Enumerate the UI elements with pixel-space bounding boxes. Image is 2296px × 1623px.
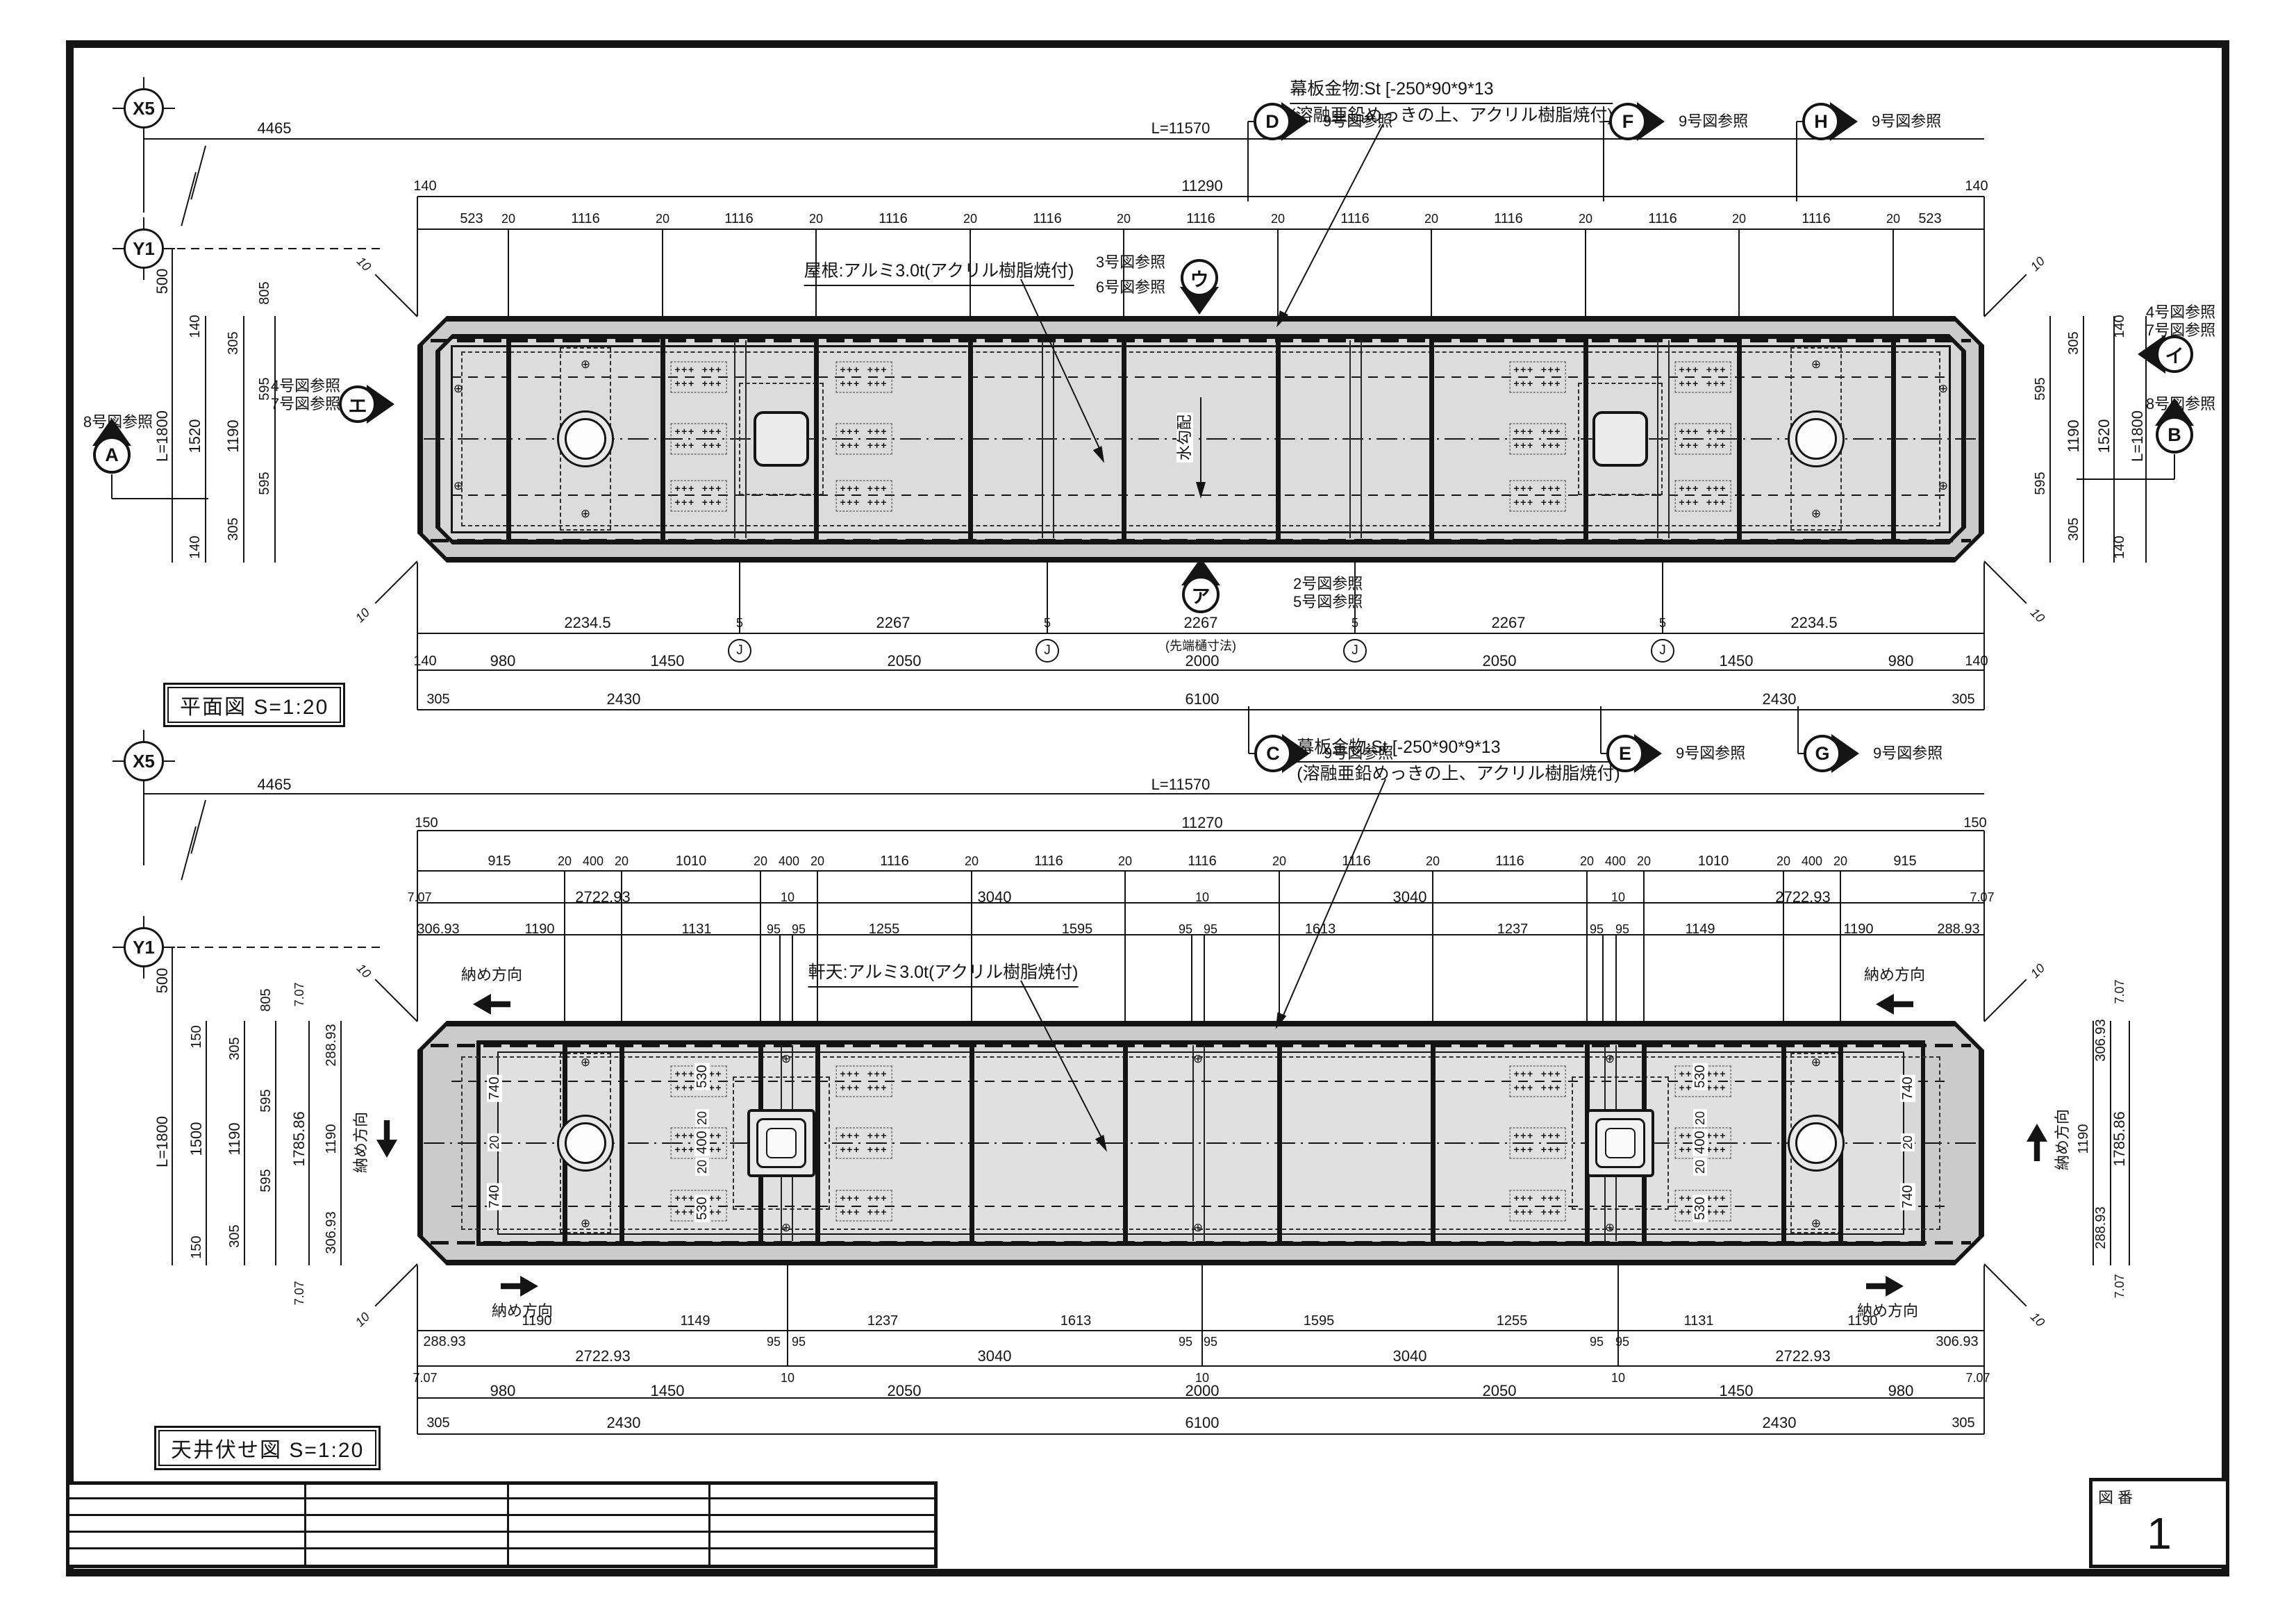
ceiling-mullion (1277, 1044, 1282, 1242)
dimension-label: 6100 (1186, 1415, 1220, 1431)
ceiling-rail (1192, 1045, 1194, 1241)
dimension-label: 400 (583, 855, 604, 867)
dimension-label: 3040 (978, 1349, 1012, 1364)
ceiling-dash-bottom (431, 1241, 1971, 1245)
dimension-line (2077, 478, 2174, 480)
dimension-label: 305 (2067, 517, 2081, 540)
dimension-label: 納め方向 (2055, 1109, 2070, 1170)
ceiling-bolt-icon: ⊕ (581, 1217, 590, 1231)
marker-letter: イ (2156, 335, 2193, 373)
dimension-label: 20 (1637, 855, 1651, 867)
plan-column-square (754, 411, 809, 467)
dimension-line (2113, 316, 2115, 563)
dimension-label: 9号図参照 (1872, 114, 1941, 129)
grid-bubble-tick (113, 248, 124, 249)
dimension-line (1432, 871, 1433, 1021)
dimension-label: 980 (490, 1383, 516, 1399)
dimension-label: 305 (228, 1224, 242, 1247)
dimension-line (172, 249, 173, 563)
dimension-label: 530 (1692, 1063, 1708, 1090)
dimension-label: 95 (1615, 1335, 1629, 1348)
plan-rail (1657, 340, 1658, 538)
plan-rail (745, 340, 747, 538)
dimension-label: 20 (1833, 855, 1847, 867)
dimension-label: 20 (1424, 213, 1438, 225)
plan-fastener-cluster: +++ +++ +++ +++ (1510, 424, 1566, 455)
dimension-line (792, 935, 793, 1021)
title-block-table (66, 1481, 938, 1568)
plan-bolt-icon: ⊕ (454, 479, 463, 493)
dimension-label: 1190 (524, 922, 554, 936)
ceiling-fastener-cluster: +++ +++ +++ +++ (1510, 1190, 1566, 1222)
dimension-line (1279, 871, 1280, 1021)
dimension-line (275, 1021, 276, 1265)
grid-bubble-tick (113, 947, 124, 948)
dimension-label: 3号図参照 (1096, 255, 1165, 270)
note-makuita-mid: 幕板金物:St [-250*90*9*13 (溶融亜鉛めっきの上、アクリル樹脂焼… (1297, 736, 1620, 786)
dimension-label: 805 (259, 988, 273, 1011)
dimension-line (1602, 935, 1604, 1021)
plan-fastener-cluster: +++ +++ +++ +++ (1675, 362, 1731, 393)
plan-bolt-icon: ⊕ (1938, 479, 1948, 493)
grid-bubble-tick (143, 967, 144, 979)
plan-title: 平面図 S=1:20 (167, 687, 341, 723)
plan-rail (1349, 340, 1351, 538)
dimension-label: 9号図参照 (1679, 114, 1748, 129)
ceiling-bolt-icon: ⊕ (1193, 1052, 1203, 1066)
dimension-label: 2050 (1483, 654, 1517, 669)
plan-mullion (1122, 339, 1126, 540)
dimension-line (662, 229, 663, 316)
grid-bubble-tick (143, 128, 144, 140)
dimension-label: 1237 (867, 1314, 899, 1328)
ceiling-fastener-cluster: +++ +++ +++ +++ (836, 1066, 892, 1097)
dimension-label: 20 (501, 213, 515, 225)
ceiling-bolt-icon: ⊕ (1193, 1221, 1203, 1235)
dimension-label: 288.93 (2094, 1206, 2108, 1249)
dimension-label: 10 (1611, 1372, 1625, 1384)
plan-mullion (1276, 339, 1281, 540)
dimension-label: 915 (1893, 854, 1916, 868)
dimension-line (1585, 229, 1586, 316)
note-makuita-top: 幕板金物:St [-250*90*9*13 (溶融亜鉛めっきの上、アクリル樹脂焼… (1290, 78, 1613, 128)
dimension-line (417, 1330, 1984, 1331)
dimension-label: 980 (490, 654, 516, 669)
dimension-label: 500 (155, 968, 170, 994)
dimension-label: 140 (2113, 315, 2127, 338)
ceiling-fastener-cluster: +++ +++ +++ +++ (836, 1128, 892, 1159)
dimension-label: 7.07 (407, 891, 431, 904)
ceiling-bolt-icon: ⊕ (1605, 1052, 1615, 1066)
dimension-label: 2722.93 (575, 1349, 631, 1364)
dimension-label: 20 (695, 1109, 709, 1127)
dimension-label: 20 (810, 855, 824, 867)
dimension-label: 740 (1900, 1074, 1915, 1101)
dimension-line (144, 138, 1984, 140)
dimension-label: 7.07 (2113, 979, 2126, 1004)
dimension-label: 水勾配 (1176, 413, 1193, 463)
dimension-label: 1613 (1305, 922, 1336, 936)
dimension-line (1983, 831, 1985, 1021)
dimension-label: 1116 (1188, 854, 1217, 868)
dimension-label: 9号図参照 (1873, 746, 1943, 761)
dimension-label: 納め方向 (1864, 967, 1925, 983)
grid-bubble-tick (113, 108, 124, 109)
ceiling-column-circle (1788, 1115, 1845, 1172)
dimension-label: 95 (1615, 923, 1629, 935)
marker-letter: J (1343, 639, 1367, 663)
dimension-label: 140 (188, 315, 202, 338)
ceiling-mullion (1123, 1044, 1128, 1242)
dimension-label: 20 (965, 855, 979, 867)
dimension-label: 1190 (324, 1124, 338, 1154)
grid-bubble-tick (143, 77, 144, 88)
plan-rail (1668, 340, 1670, 538)
table-row-line (67, 1514, 936, 1516)
dimension-label: 9号図参照 (1676, 746, 1745, 761)
dimension-label: 5 (1351, 617, 1358, 629)
note-nokiten-text: 軒天:アルミ3.0t(アクリル樹脂焼付) (808, 961, 1079, 988)
dimension-label: 1450 (651, 654, 685, 669)
dimension-line (1983, 563, 1985, 710)
dimension-label: 595 (258, 472, 272, 494)
plan-bolt-icon: ⊕ (581, 507, 590, 521)
table-col-line (304, 1483, 306, 1567)
grid-bubble-tick (164, 108, 175, 109)
plan-bolt-icon: ⊕ (1938, 382, 1948, 396)
plan-bolt-icon: ⊕ (454, 382, 463, 396)
dimension-line (112, 498, 208, 499)
marker-letter: ウ (1181, 259, 1218, 297)
dimension-label: 150 (415, 816, 438, 830)
dimension-label: 1500 (189, 1122, 204, 1156)
dimension-line (417, 1365, 1984, 1367)
plan-fastener-cluster: +++ +++ +++ +++ (1510, 481, 1566, 512)
dimension-line (1797, 706, 1799, 754)
dimension-label: 2267 (1184, 615, 1218, 631)
dimension-label: 740 (1900, 1183, 1915, 1210)
dimension-line (340, 1021, 342, 1265)
dimension-label: 7.07 (293, 1281, 306, 1305)
grid-bubble-tick (113, 760, 124, 762)
dimension-label: 20 (809, 213, 823, 225)
dimension-label: 1131 (681, 922, 711, 936)
grid-bubble-x5: X5 (124, 741, 164, 781)
dimension-line (163, 947, 385, 948)
dimension-label: 140 (413, 179, 436, 193)
dimension-label: 1255 (1497, 1314, 1528, 1328)
dimension-label: 20 (558, 855, 572, 867)
dimension-label: 7.07 (413, 1372, 437, 1384)
marker-letter: J (1651, 639, 1674, 663)
dimension-label: 1785.86 (292, 1111, 307, 1167)
dimension-label: 2000 (1186, 1383, 1220, 1399)
dimension-label: 2722.93 (1775, 890, 1831, 905)
ceiling-mullion (1781, 1044, 1786, 1242)
dimension-label: 1149 (1685, 922, 1715, 936)
dimension-label: 1116 (1033, 212, 1062, 226)
dimension-line (417, 196, 1984, 197)
dimension-label: 20 (1579, 213, 1592, 225)
dimension-label: 10 (781, 1372, 795, 1384)
dimension-line (1191, 935, 1192, 1021)
marker-letter: E (1606, 735, 1644, 772)
dimension-label: 7.07 (1965, 1372, 1990, 1384)
plan-fastener-cluster: +++ +++ +++ +++ (671, 362, 727, 393)
dimension-line (417, 934, 1984, 935)
ceiling-bolt-icon: ⊕ (781, 1221, 791, 1235)
dimension-line (417, 633, 1984, 634)
dimension-label: 530 (694, 1195, 710, 1222)
dimension-line (1892, 229, 1894, 316)
dimension-label: 595 (2033, 377, 2047, 400)
dimension-label: 523 (460, 212, 483, 226)
dimension-label: 1190 (227, 1122, 242, 1155)
dimension-label: 20 (1886, 213, 1900, 225)
dimension-label: 2050 (888, 654, 922, 669)
dimension-label: 1190 (1843, 922, 1873, 936)
dimension-label: 400 (779, 855, 799, 867)
dimension-line (1617, 1265, 1619, 1366)
ceiling-bolt-icon: ⊕ (781, 1052, 791, 1066)
grid-bubble-tick (143, 730, 144, 741)
plan-rail (1053, 340, 1054, 538)
dimension-label: 2430 (1763, 1415, 1797, 1431)
dimension-line (1643, 871, 1645, 1021)
plan-mullion (1737, 339, 1742, 540)
grid-bubble-tick (164, 760, 175, 762)
dimension-label: 2050 (888, 1383, 922, 1399)
dimension-line (508, 229, 509, 316)
table-col-line (507, 1483, 509, 1567)
dimension-line (1840, 871, 1841, 1021)
dimension-label: 1450 (1720, 654, 1754, 669)
plan-column-square (1592, 411, 1648, 467)
dimension-label: 1116 (571, 212, 600, 226)
dimension-label: 2050 (1483, 1383, 1517, 1399)
note-nokiten: 軒天:アルミ3.0t(アクリル樹脂焼付) (808, 961, 1079, 988)
plan-column-circle (557, 410, 614, 467)
dimension-label: 95 (792, 923, 806, 935)
marker-letter: ア (1182, 576, 1220, 613)
plan-rail (1361, 340, 1362, 538)
dimension-label: 1116 (1494, 212, 1523, 226)
dimension-line (308, 1021, 310, 1265)
dimension-label: 1190 (226, 419, 241, 452)
dimension-label: 306.93 (1936, 1335, 1978, 1349)
dimension-label: 5 (736, 617, 743, 629)
plan-fastener-cluster: +++ +++ +++ +++ (671, 481, 727, 512)
ceiling-column-circle (557, 1115, 614, 1172)
plan-mullion (968, 339, 973, 540)
dimension-label: 400 (1802, 855, 1822, 867)
dimension-label: 915 (488, 854, 510, 868)
dimension-label: 523 (1918, 212, 1941, 226)
grid-bubble-tick (143, 269, 144, 280)
dimension-label: 20 (1272, 855, 1286, 867)
dimension-label: 11290 (1181, 178, 1223, 194)
dimension-label: 20 (1901, 1133, 1915, 1151)
dimension-label: 150 (1963, 816, 1986, 830)
dimension-label: 20 (1426, 855, 1440, 867)
dimension-label: 6100 (1186, 692, 1220, 707)
dimension-line (779, 935, 781, 1021)
dimension-label: 1520 (2097, 419, 2112, 453)
plan-rail (1042, 340, 1043, 538)
dimension-line (143, 129, 144, 213)
dimension-line (1738, 229, 1740, 316)
dimension-label: 3040 (1393, 1349, 1427, 1364)
grid-bubble-y1: Y1 (124, 927, 164, 967)
plan-column-circle (1788, 410, 1845, 467)
ceiling-bolt-icon: ⊕ (1811, 1217, 1821, 1231)
dimension-line (244, 1021, 245, 1265)
dimension-label: 1131 (1683, 1314, 1713, 1328)
dimension-label: 140 (2113, 535, 2127, 558)
dimension-label: 306.93 (417, 922, 459, 936)
dimension-label: 95 (1590, 1335, 1604, 1348)
dimension-label: 20 (1732, 213, 1746, 225)
dimension-label: 1613 (1060, 1314, 1092, 1328)
dimension-line (2049, 316, 2051, 563)
dimension-label: 305 (1952, 1416, 1974, 1430)
dimension-line (417, 228, 1984, 230)
dimension-label: 20 (1693, 1109, 1707, 1127)
dimension-line (760, 871, 761, 1021)
marker-letter: B (2156, 416, 2193, 453)
dimension-label: 1116 (1340, 212, 1370, 226)
note-makuita-top-line2: (溶融亜鉛めっきの上、アクリル樹脂焼付) (1290, 104, 1613, 128)
dimension-label: 1116 (879, 212, 908, 226)
dimension-label: 95 (767, 923, 781, 935)
dimension-label: 140 (188, 535, 202, 558)
plan-fastener-cluster: +++ +++ +++ +++ (836, 424, 892, 455)
dimension-label: 1190 (2077, 1124, 2090, 1154)
dimension-line (417, 1433, 1984, 1435)
ceiling-dash-top (431, 1044, 1971, 1047)
dimension-label: 2430 (607, 692, 641, 707)
dimension-label: L=11570 (1151, 777, 1211, 792)
dimension-line (243, 316, 244, 563)
dimension-label: 1116 (1342, 854, 1371, 868)
dimension-label: 20 (488, 1133, 501, 1151)
dimension-label: 2234.5 (564, 615, 610, 631)
ceiling-fastener-cluster: +++ +++ +++ +++ (1510, 1128, 1566, 1159)
dimension-label: 2430 (607, 1415, 641, 1431)
marker-letter: H (1802, 103, 1840, 140)
dimension-label: 10 (781, 891, 795, 904)
table-col-line (708, 1483, 710, 1567)
dimension-label: 150 (190, 1235, 203, 1258)
dimension-label: (先端樋寸法) (1165, 640, 1236, 652)
dimension-label: 2000 (1186, 654, 1220, 669)
dimension-line (1983, 197, 1985, 316)
plan-rail (734, 340, 735, 538)
dimension-label: 288.93 (423, 1335, 465, 1349)
dimension-label: 305 (226, 517, 240, 540)
dimension-label: 400 (1605, 855, 1626, 867)
dimension-label: 140 (1965, 179, 1988, 193)
marker-letter: エ (339, 385, 376, 423)
ceiling-bolt-icon: ⊕ (1605, 1221, 1615, 1235)
sheet-number-box: 図番 1 (2089, 1478, 2229, 1568)
plan-fastener-cluster: +++ +++ +++ +++ (1675, 481, 1731, 512)
dimension-label: 2430 (1763, 692, 1797, 707)
dimension-line (1586, 871, 1588, 1021)
dimension-label: 530 (694, 1063, 710, 1090)
dimension-label: 140 (1965, 654, 1988, 668)
ceiling-fastener-cluster: +++ +++ +++ +++ (1510, 1066, 1566, 1097)
plan-bolt-icon: ⊕ (581, 358, 590, 372)
dimension-label: 95 (792, 1335, 806, 1348)
grid-bubble-tick (164, 248, 175, 249)
dimension-label: 3040 (978, 890, 1012, 905)
marker-letter: A (93, 436, 131, 474)
dimension-label: 95 (1204, 1335, 1217, 1348)
dimension-label: 20 (1118, 855, 1132, 867)
dimension-label: 1255 (869, 922, 900, 936)
marker-letter: J (1035, 639, 1059, 663)
dimension-label: 95 (767, 1335, 781, 1348)
dimension-label: 7.07 (2113, 1274, 2126, 1298)
dimension-label: 305 (426, 1416, 449, 1430)
dimension-label: 305 (1952, 692, 1974, 706)
dimension-label: 595 (2033, 472, 2047, 494)
plan-title-box: 平面図 S=1:20 (163, 683, 345, 727)
grid-bubble-tick (164, 947, 175, 948)
ceiling-mullion (815, 1044, 820, 1242)
dimension-label: 306.93 (324, 1211, 338, 1254)
dimension-label: 4465 (258, 777, 292, 792)
dimension-line (172, 947, 173, 1265)
dimension-line (1204, 935, 1205, 1021)
table-row-line (67, 1547, 936, 1549)
dimension-label: 1450 (651, 1383, 685, 1399)
plan-mullion (506, 339, 511, 540)
dimension-line (1248, 706, 1249, 754)
dimension-label: 20 (1117, 213, 1131, 225)
dimension-label: 595 (259, 1089, 273, 1112)
grid-bubble-tick (143, 916, 144, 927)
dimension-label: 1116 (1648, 212, 1677, 226)
dimension-label: 20 (1777, 855, 1790, 867)
dimension-label: 1116 (724, 212, 754, 226)
dimension-label: 400 (694, 1129, 710, 1156)
dimension-line (417, 563, 418, 710)
ceiling-light-box (747, 1109, 815, 1177)
dimension-line (2174, 454, 2175, 479)
dimension-label: 305 (226, 331, 240, 354)
ceiling-mullion (1431, 1044, 1436, 1242)
dimension-label: 7号図参照 (271, 397, 340, 412)
dimension-label: 4465 (258, 121, 292, 136)
plan-bolt-icon: ⊕ (1811, 358, 1821, 372)
ceiling-mullion (970, 1044, 974, 1242)
dimension-label: 95 (1590, 923, 1604, 935)
dimension-line (564, 871, 565, 1021)
dimension-label: 500 (155, 269, 170, 294)
dimension-label: 150 (190, 1025, 203, 1048)
dimension-line (2129, 1021, 2130, 1265)
dimension-line (111, 474, 113, 499)
dimension-label: 1595 (1062, 922, 1093, 936)
dimension-line (417, 197, 418, 316)
dimension-label: 1520 (188, 419, 203, 453)
dimension-line (1431, 229, 1432, 316)
dimension-label: 530 (1692, 1195, 1708, 1222)
dimension-label: 595 (259, 1169, 273, 1192)
grid-bubble-x5: X5 (124, 88, 164, 128)
